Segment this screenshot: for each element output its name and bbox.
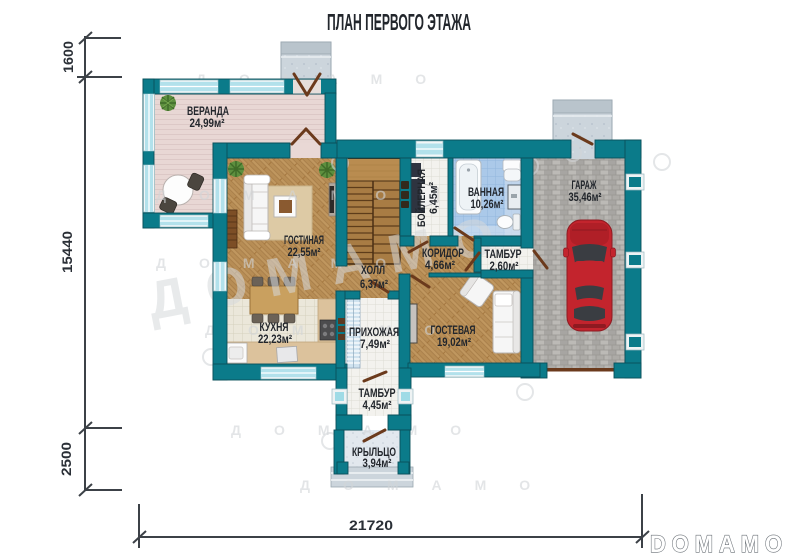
- svg-text:ПЛАН ПЕРВОГО ЭТАЖА: ПЛАН ПЕРВОГО ЭТАЖА: [327, 9, 471, 35]
- svg-text:19,02м²: 19,02м²: [437, 335, 471, 349]
- svg-text:15440: 15440: [59, 231, 75, 273]
- svg-text:24,99м²: 24,99м²: [190, 116, 225, 130]
- svg-text:3,94м²: 3,94м²: [363, 456, 392, 470]
- svg-text:4,45м²: 4,45м²: [363, 398, 392, 412]
- svg-text:22,23м²: 22,23м²: [258, 332, 292, 346]
- svg-text:10,26м²: 10,26м²: [471, 197, 504, 211]
- svg-text:35,46м²: 35,46м²: [569, 190, 602, 204]
- svg-text:7,49м²: 7,49м²: [360, 337, 390, 351]
- svg-text:6,37м²: 6,37м²: [360, 277, 388, 291]
- svg-text:1600: 1600: [60, 41, 76, 73]
- svg-text:6,45м²: 6,45м²: [428, 182, 440, 214]
- svg-text:2500: 2500: [58, 442, 74, 476]
- svg-text:БОЙЛЕРНАЯ: БОЙЛЕРНАЯ: [415, 169, 428, 227]
- svg-text:DOMAMO: DOMAMO: [650, 531, 788, 558]
- svg-text:2,60м²: 2,60м²: [490, 259, 519, 273]
- svg-text:22,55м²: 22,55м²: [288, 245, 321, 259]
- svg-text:4,66м²: 4,66м²: [425, 258, 455, 272]
- svg-text:21720: 21720: [349, 517, 393, 533]
- svg-text:ХОЛЛ: ХОЛЛ: [361, 263, 385, 277]
